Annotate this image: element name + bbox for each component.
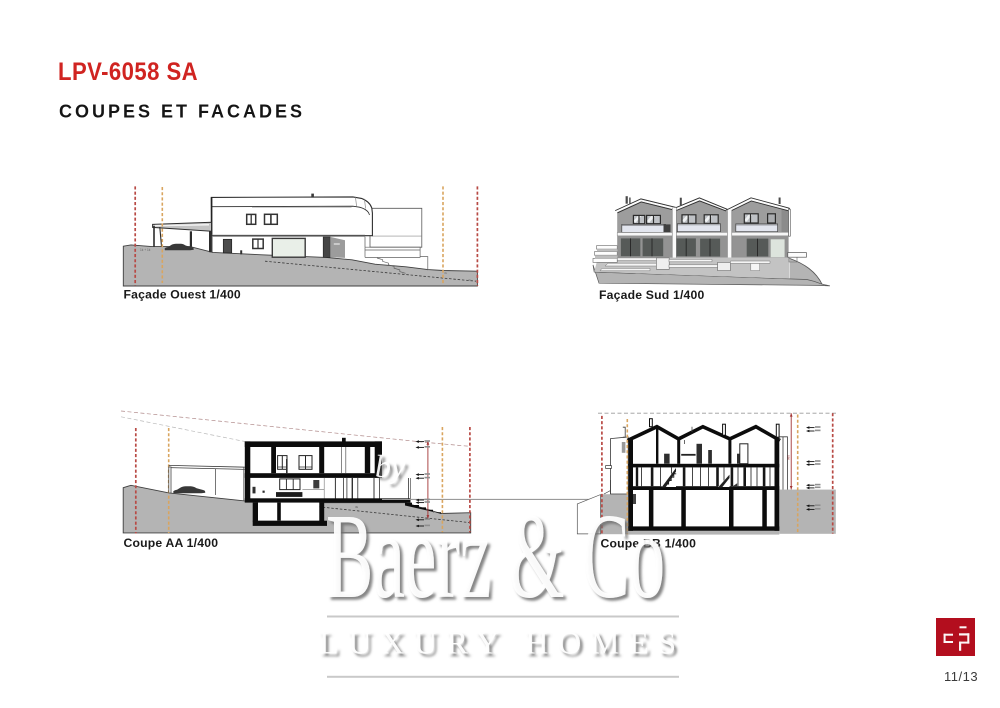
svg-text:Baerz & Co: Baerz & Co (326, 488, 665, 624)
svg-text:11/13: 11/13 (944, 669, 978, 684)
svg-text:by: by (375, 448, 406, 484)
svg-text:LUXURY HOMES: LUXURY HOMES (319, 624, 686, 660)
